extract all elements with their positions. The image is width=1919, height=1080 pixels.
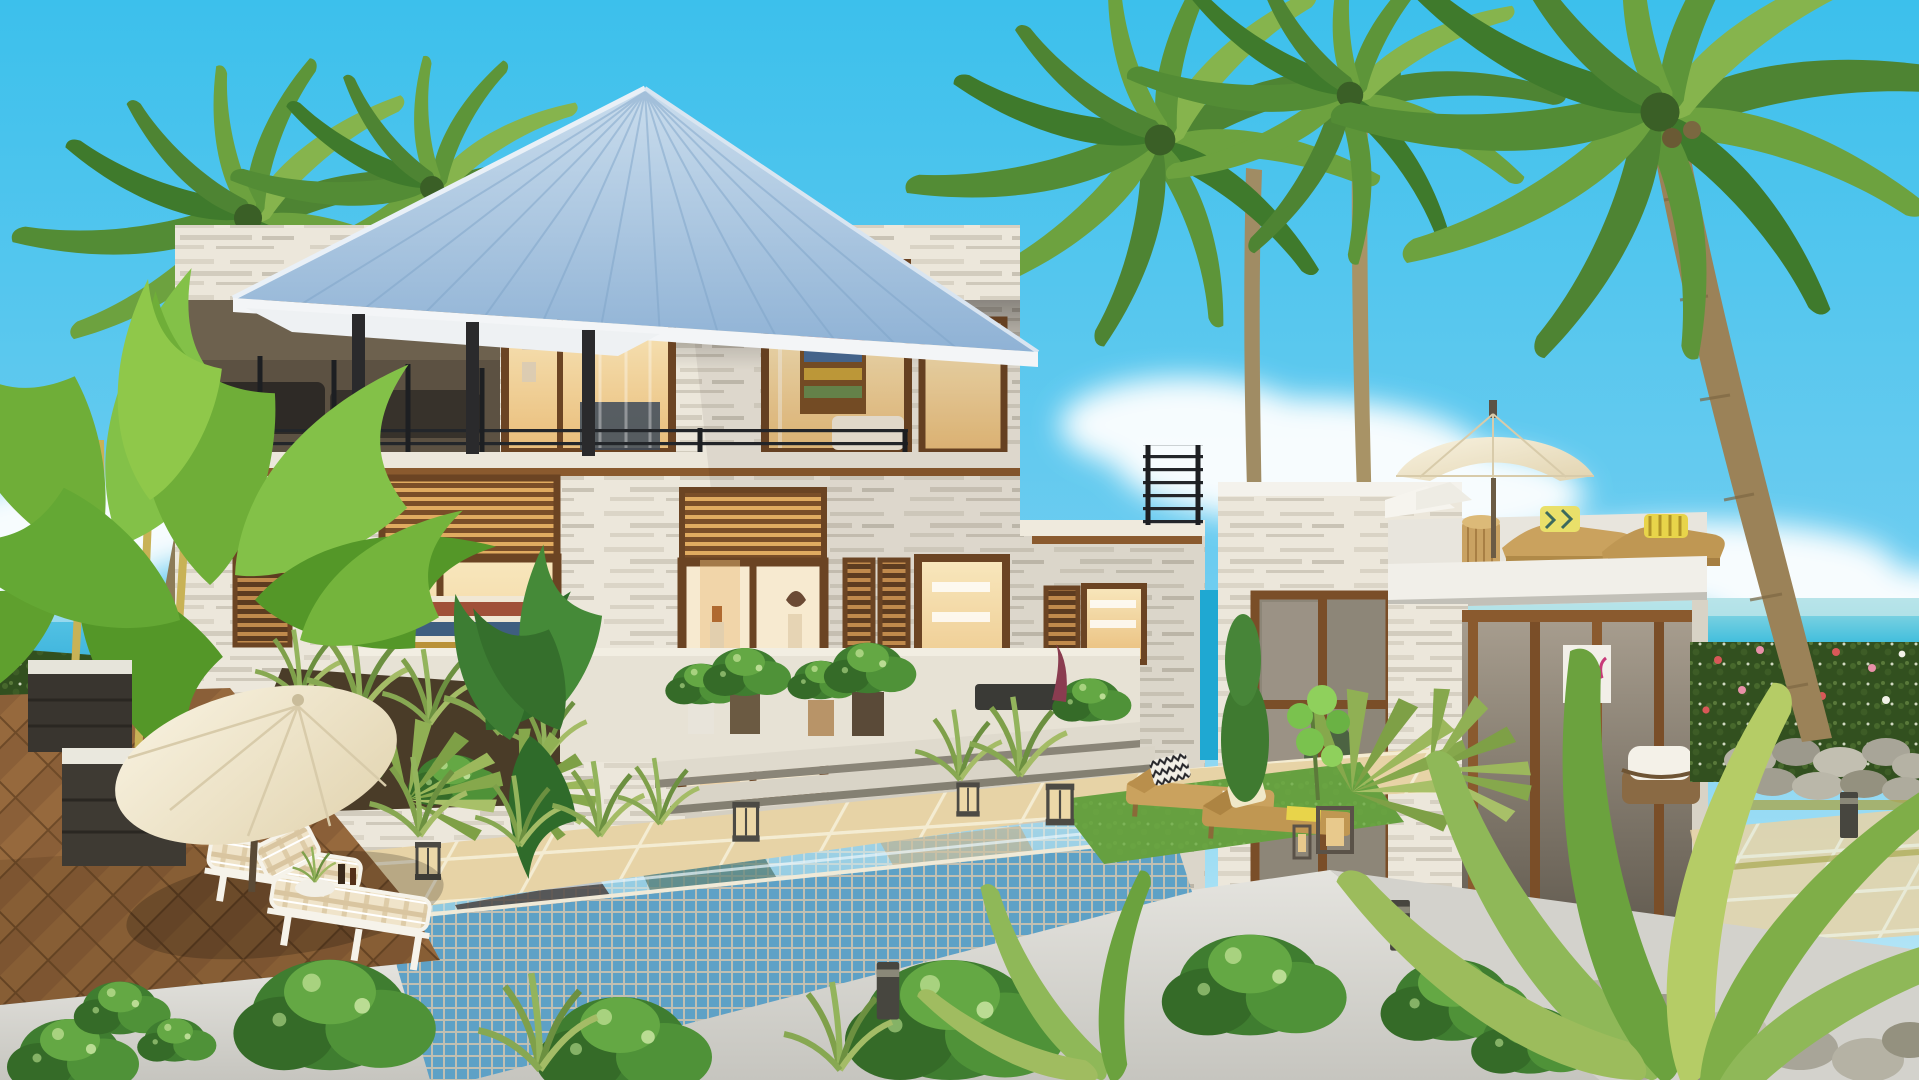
wicker-armchair <box>1622 746 1700 804</box>
louvre-transom <box>682 490 824 562</box>
wing-railing <box>1143 445 1203 525</box>
shelf <box>932 582 990 592</box>
sculpture <box>712 606 722 622</box>
planter-box <box>28 660 132 752</box>
villa-rendering-stage <box>0 0 1919 1080</box>
umbrella-hub <box>292 694 304 706</box>
white-pebbles <box>28 660 132 674</box>
coconut <box>1683 121 1701 139</box>
bollard-light <box>877 962 900 1020</box>
villa-rendering <box>0 0 1919 1080</box>
bollard-light <box>1840 792 1858 838</box>
picture-frame <box>522 362 536 382</box>
bottle <box>350 868 356 885</box>
towel <box>1286 806 1321 822</box>
diamond-pillow <box>1540 506 1580 532</box>
shelf <box>932 612 990 622</box>
ocean-sliver <box>1200 590 1220 760</box>
columnar-shrub <box>1225 614 1261 706</box>
bottle <box>338 864 345 884</box>
coconut <box>1662 128 1682 148</box>
moss <box>1730 800 1919 810</box>
wing-trim <box>1032 536 1202 544</box>
umbrella-pole <box>1491 478 1496 558</box>
